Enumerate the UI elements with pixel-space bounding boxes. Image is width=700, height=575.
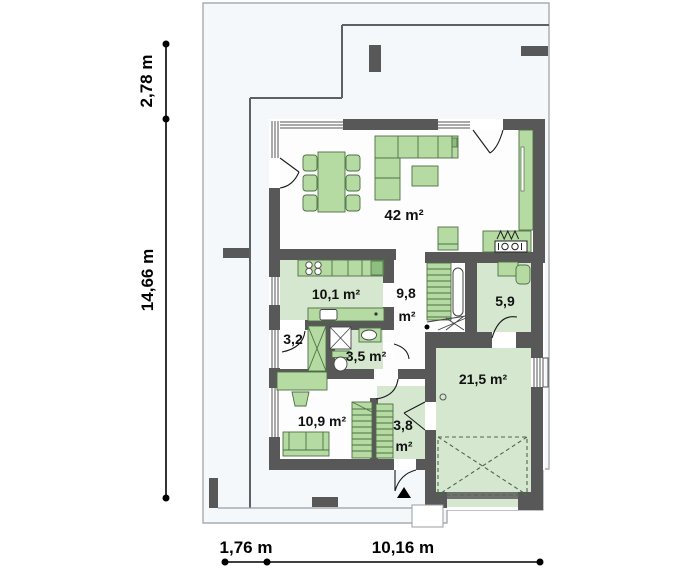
fireplace xyxy=(483,231,531,252)
bedroom-wardrobe xyxy=(352,402,372,458)
living-room-label: 42 m² xyxy=(384,207,423,224)
armchair xyxy=(438,227,458,250)
kitchen-counter xyxy=(298,260,384,276)
kitchen-island xyxy=(308,308,384,321)
stair-start-dot xyxy=(425,325,430,330)
terrace-wall-stub xyxy=(223,248,249,258)
office-chair xyxy=(516,265,530,284)
entry-wardrobe xyxy=(376,404,393,458)
closet-window xyxy=(269,330,280,368)
dim-terrace-depth: 2,78 m xyxy=(137,55,156,108)
dim-bottom-offset: 1,76 m xyxy=(220,538,273,557)
fridge xyxy=(371,261,383,275)
kitchen-label: 10,1 m² xyxy=(312,286,361,302)
entrance-step xyxy=(412,505,443,527)
entry-label-unit: m² xyxy=(395,438,412,454)
dim-house-side: 14,66 m xyxy=(138,249,157,311)
entry-label-value: 3,8 xyxy=(393,417,413,433)
bathroom-sink xyxy=(359,328,381,342)
kitchen-window xyxy=(269,277,280,305)
driveway-strip xyxy=(447,499,518,507)
bedroom-chair xyxy=(292,392,309,406)
bedroom-label: 10,9 m² xyxy=(298,413,347,429)
dim-house-width: 10,16 m xyxy=(372,538,434,557)
closet-label: 3,2 xyxy=(283,331,303,347)
porch-wall-stub xyxy=(209,478,218,508)
hall-label-value: 9,8 xyxy=(396,285,416,301)
coffee-table xyxy=(412,166,438,186)
closet-wardrobe xyxy=(308,326,326,371)
terrace-pillar xyxy=(369,45,381,72)
bedroom-window xyxy=(269,388,280,437)
garage-floor xyxy=(436,348,531,492)
terrace-pillar-2 xyxy=(521,46,548,56)
kitchen-sink xyxy=(320,310,337,321)
floor-plan-screenshot: 42 m² 10,1 m² 9,8 m² 5,9 3,2 3,5 m² 10,9… xyxy=(0,0,700,575)
shower xyxy=(330,327,351,349)
bedroom-sofa xyxy=(283,432,329,456)
living-window xyxy=(438,119,470,130)
tv-cabinet xyxy=(519,130,533,230)
bathroom-label: 3,5 m² xyxy=(346,348,387,364)
floor-plan-drawing: 42 m² 10,1 m² 9,8 m² 5,9 3,2 3,5 m² 10,9… xyxy=(0,0,700,575)
garage-label: 21,5 m² xyxy=(459,371,508,387)
dining-table-set xyxy=(303,152,360,212)
hall-label-unit: m² xyxy=(398,308,415,324)
porch-step xyxy=(312,497,338,507)
office-label: 5,9 xyxy=(495,293,515,309)
